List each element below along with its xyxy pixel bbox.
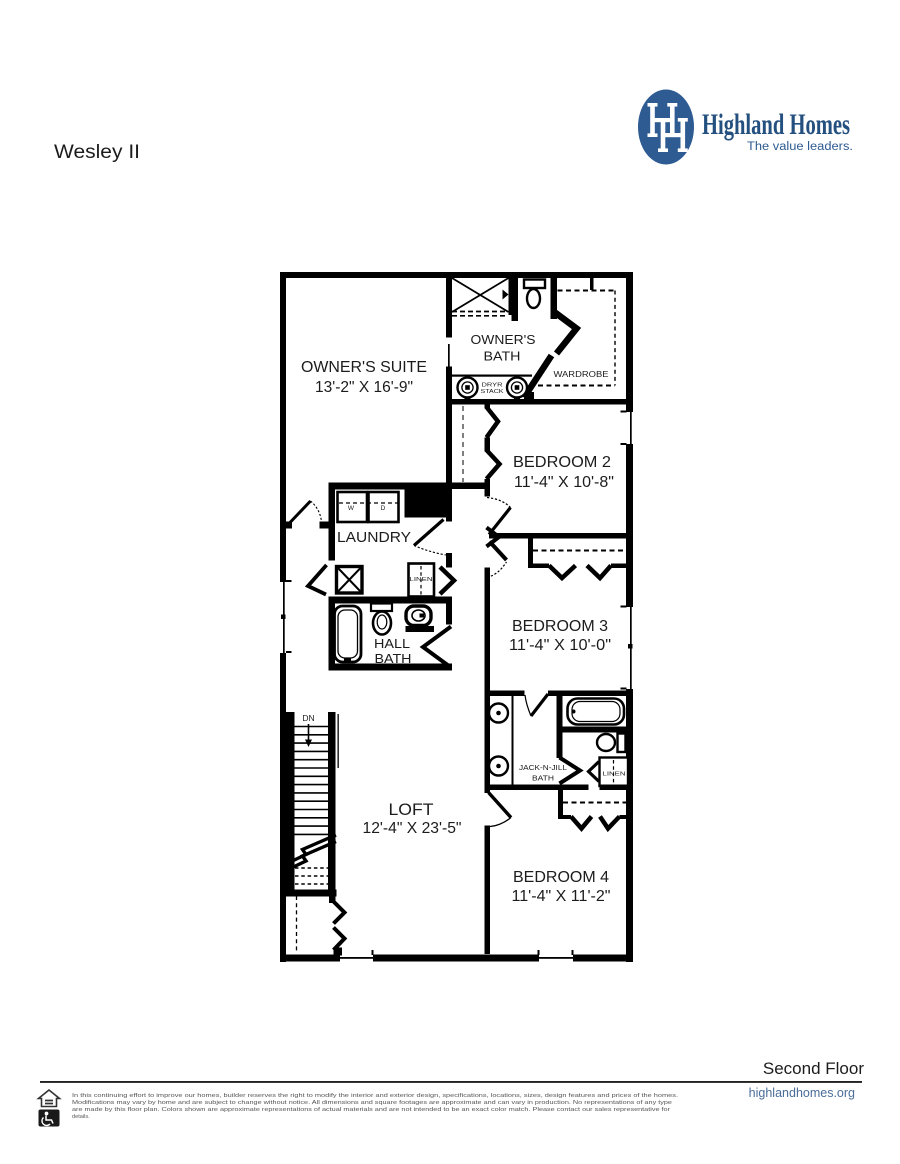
svg-text:11'-4" X 10'-0": 11'-4" X 10'-0" <box>509 637 611 654</box>
svg-text:WARDROBE: WARDROBE <box>554 370 609 379</box>
svg-text:details.: details. <box>72 1114 90 1120</box>
svg-text:STACK: STACK <box>481 389 505 395</box>
svg-text:Modifications may vary by home: Modifications may vary by home and are s… <box>72 1100 672 1106</box>
svg-text:11'-4" X 11'-2": 11'-4" X 11'-2" <box>512 888 611 905</box>
svg-text:BATH: BATH <box>532 776 554 783</box>
svg-text:LINEN: LINEN <box>603 772 626 778</box>
svg-text:OWNER'S SUITE: OWNER'S SUITE <box>301 359 427 376</box>
svg-text:The value leaders.: The value leaders. <box>747 141 853 153</box>
svg-text:11'-4" X 10'-8": 11'-4" X 10'-8" <box>514 474 614 491</box>
svg-text:W: W <box>348 505 355 512</box>
svg-text:HALL: HALL <box>374 636 410 651</box>
svg-text:BATH: BATH <box>484 349 521 364</box>
svg-text:highlandhomes.org: highlandhomes.org <box>749 1086 855 1100</box>
svg-text:are made by this floor plan. C: are made by this floor plan. Colors show… <box>72 1107 670 1113</box>
svg-text:Highland Homes: Highland Homes <box>702 108 850 141</box>
svg-text:12'-4" X 23'-5": 12'-4" X 23'-5" <box>363 820 462 837</box>
svg-text:BEDROOM 2: BEDROOM 2 <box>513 454 611 471</box>
svg-text:BEDROOM 4: BEDROOM 4 <box>513 869 609 886</box>
svg-text:13'-2" X 16'-9": 13'-2" X 16'-9" <box>315 379 413 396</box>
svg-text:DN: DN <box>302 713 314 723</box>
svg-text:JACK-N-JILL: JACK-N-JILL <box>519 765 567 772</box>
svg-text:LOFT: LOFT <box>389 801 434 819</box>
svg-text:Wesley II: Wesley II <box>54 141 140 163</box>
svg-text:OWNER'S: OWNER'S <box>471 332 536 347</box>
svg-text:Second Floor: Second Floor <box>763 1059 864 1078</box>
svg-text:BEDROOM 3: BEDROOM 3 <box>512 618 608 635</box>
svg-text:DRYR: DRYR <box>482 383 503 389</box>
svg-text:In this continuing effort to i: In this continuing effort to improve our… <box>72 1093 679 1099</box>
svg-text:BATH: BATH <box>375 651 412 666</box>
svg-text:LAUNDRY: LAUNDRY <box>337 530 411 546</box>
svg-text:D: D <box>381 505 386 512</box>
svg-text:LINEN: LINEN <box>410 577 433 583</box>
